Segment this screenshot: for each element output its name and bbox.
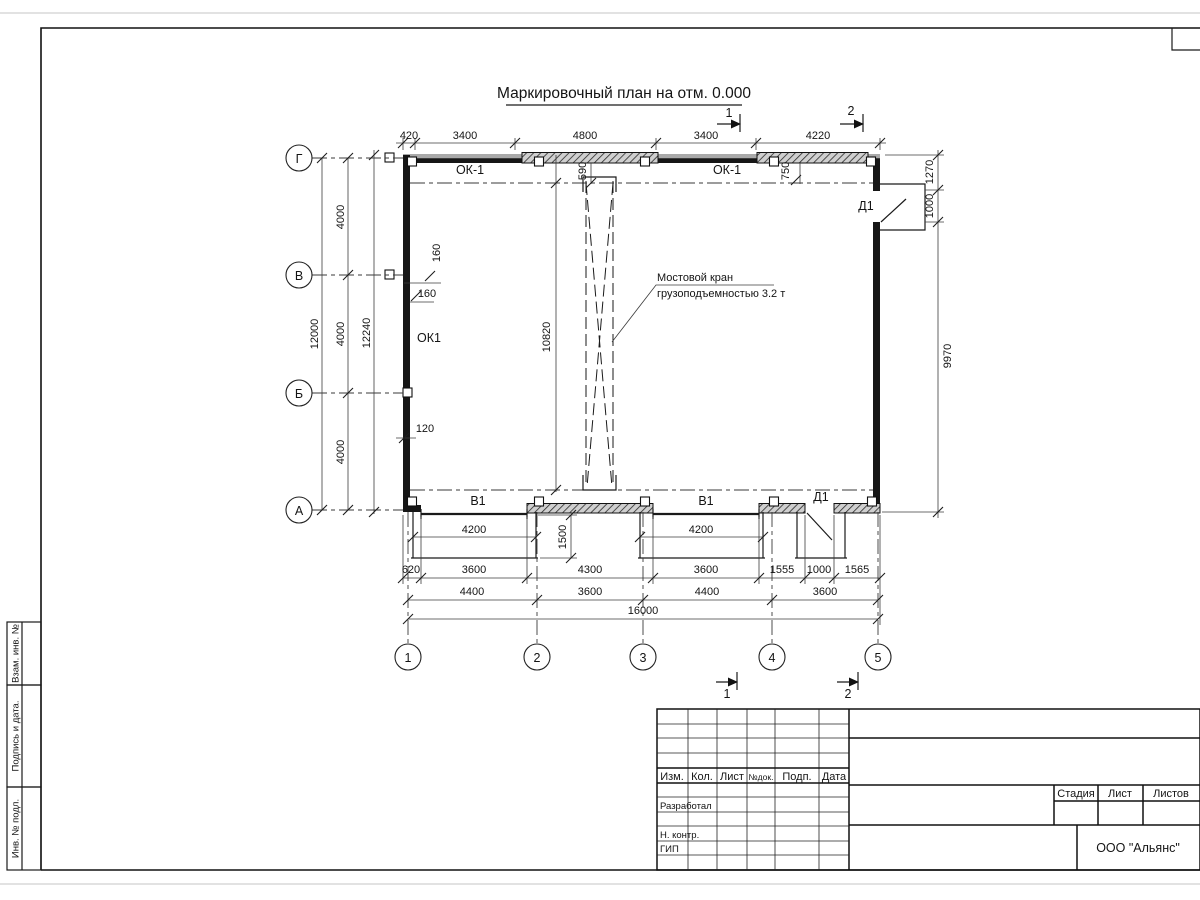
element-marks: ОК-1 ОК-1 ОК1 В1 В1 Д1 Д1 — [417, 163, 874, 508]
side-stamp-label-vzam: Взам. инв. № — [11, 624, 22, 683]
drawing-sheet: Взам. инв. № Подпись и дата. Инв. № подл… — [0, 0, 1200, 900]
section-marks: 1 2 1 2 — [716, 104, 864, 701]
tb-header-data: Дата — [822, 771, 847, 783]
dim-3400-b: 3400 — [694, 130, 718, 142]
dim-160-vertical: 160 — [431, 244, 443, 262]
tb-company-name: ООО "Альянс" — [1096, 841, 1180, 855]
dim-1270: 1270 — [924, 160, 936, 184]
building-walls — [403, 153, 880, 514]
tb-header-izm: Изм. — [660, 771, 684, 783]
dim-10820: 10820 — [541, 322, 553, 353]
tb-header-ndok: №док. — [749, 772, 774, 782]
axis-row-a: А — [295, 504, 304, 518]
plan-title: Маркировочный план на отм. 0.000 — [497, 85, 751, 102]
dim-4800: 4800 — [573, 130, 597, 142]
side-stamp-label-podpis: Подпись и дата. — [11, 701, 22, 772]
mark-ok1-top-right: ОК-1 — [713, 163, 741, 177]
svg-text:2: 2 — [845, 687, 852, 701]
dim-9970: 9970 — [942, 344, 954, 368]
dim-4000-b: 4000 — [335, 322, 347, 346]
dim-1555: 1555 — [770, 564, 794, 576]
section-mark-2-bottom: 2 — [837, 672, 859, 701]
dim-160-horizontal: 160 — [418, 288, 436, 300]
crane-annotation: Мостовой кран грузоподъемностью 3.2 т — [612, 272, 785, 342]
dim-3600-r2b: 3600 — [813, 586, 837, 598]
door-d1-top-leaf — [881, 199, 906, 222]
dim-1000-bottom: 1000 — [807, 564, 831, 576]
side-stamp-label-inv: Инв. № подл. — [11, 799, 22, 858]
tb-header-list: Лист — [720, 771, 744, 783]
dim-590: 590 — [577, 162, 589, 180]
dim-labels-right: 1270 1000 9970 — [924, 160, 954, 368]
tb-sheet-header: Лист — [1108, 788, 1132, 800]
mark-d1-bottom: Д1 — [813, 490, 828, 504]
bottom-wall-panel-2 — [759, 504, 805, 514]
title-block: Изм. Кол. Лист №док. Подп. Дата Разработ… — [657, 709, 1200, 870]
dim-3600-r1a: 3600 — [462, 564, 486, 576]
right-wall-lower — [873, 222, 880, 512]
dim-16000: 16000 — [628, 605, 659, 617]
dim-120: 120 — [416, 423, 434, 435]
dim-1000-right: 1000 — [924, 194, 936, 218]
dim-3400-a: 3400 — [453, 130, 477, 142]
axis-row-b: Б — [295, 387, 303, 401]
dim-12240: 12240 — [361, 318, 373, 349]
mark-ok1-wall: ОК1 — [417, 331, 441, 345]
dim-3600-r2a: 3600 — [578, 586, 602, 598]
dim-4000-c: 4000 — [335, 440, 347, 464]
door-d1-top-recess — [880, 184, 925, 230]
crane-note-line2: грузоподъемностью 3.2 т — [657, 288, 785, 300]
mark-d1-top: Д1 — [858, 199, 873, 213]
tb-sheets-header: Листов — [1153, 788, 1189, 800]
section-mark-2-top: 2 — [840, 104, 864, 132]
dim-labels-top: 420 3400 4800 3400 4220 — [400, 130, 830, 142]
section-mark-1-top: 1 — [717, 106, 741, 132]
dim-3600-r1b: 3600 — [694, 564, 718, 576]
left-wall — [403, 155, 410, 512]
dim-1500: 1500 — [557, 525, 569, 549]
dim-labels-left: 12000 4000 4000 4000 12240 — [309, 205, 373, 464]
tb-header-podp: Подп. — [782, 771, 811, 783]
dim-4200-left: 4200 — [462, 524, 486, 536]
dim-ticks-interior — [399, 175, 801, 495]
mark-ok1-top-left: ОК-1 — [456, 163, 484, 177]
axis-row-g: Г — [296, 152, 303, 166]
svg-text:1: 1 — [724, 687, 731, 701]
axis-col-2: 2 — [534, 651, 541, 665]
axis-col-5: 5 — [875, 651, 882, 665]
mark-v1-right: В1 — [698, 494, 713, 508]
bridge-crane-symbol — [583, 177, 616, 490]
corner-stamp-box — [1172, 28, 1200, 50]
dim-620: 620 — [402, 564, 420, 576]
tb-row-razrabotal: Разработал — [660, 801, 712, 812]
dim-4220: 4220 — [806, 130, 830, 142]
svg-text:2: 2 — [848, 104, 855, 118]
dim-4300: 4300 — [578, 564, 602, 576]
side-stamp: Взам. инв. № Подпись и дата. Инв. № подл… — [7, 622, 41, 870]
tb-stage-header: Стадия — [1057, 788, 1095, 800]
dim-12000: 12000 — [309, 319, 321, 350]
dim-4000-a: 4000 — [335, 205, 347, 229]
dim-750: 750 — [780, 162, 792, 180]
dimension-lines — [322, 138, 944, 625]
tb-header-kol: Кол. — [691, 771, 713, 783]
axis-row-v: В — [295, 269, 303, 283]
mark-v1-left: В1 — [470, 494, 485, 508]
dim-labels-bottom: 4200 4200 1500 620 3600 4300 3600 1555 1… — [402, 524, 869, 617]
dim-4400-b: 4400 — [695, 586, 719, 598]
tb-row-gip: ГИП — [660, 844, 679, 855]
axis-col-markers: 1 2 3 4 5 — [395, 644, 891, 670]
crane-note-line1: Мостовой кран — [657, 272, 733, 284]
axis-col-3: 3 — [640, 651, 647, 665]
bottom-wall-panel-1 — [527, 504, 653, 514]
dim-1565: 1565 — [845, 564, 869, 576]
plan-drawing-canvas: Взам. инв. № Подпись и дата. Инв. № подл… — [0, 0, 1200, 900]
dim-4200-right: 4200 — [689, 524, 713, 536]
dim-420: 420 — [400, 130, 418, 142]
door-d1-bottom-leaf — [807, 513, 832, 540]
axis-col-4: 4 — [769, 651, 776, 665]
axis-col-1: 1 — [405, 651, 412, 665]
section-mark-1-bottom: 1 — [716, 672, 738, 701]
title-block-columns — [688, 709, 819, 870]
tb-row-nkontr: Н. контр. — [660, 830, 699, 841]
svg-text:1: 1 — [726, 106, 733, 120]
dim-4400-a: 4400 — [460, 586, 484, 598]
column-marks — [385, 153, 877, 506]
openings — [421, 184, 925, 540]
